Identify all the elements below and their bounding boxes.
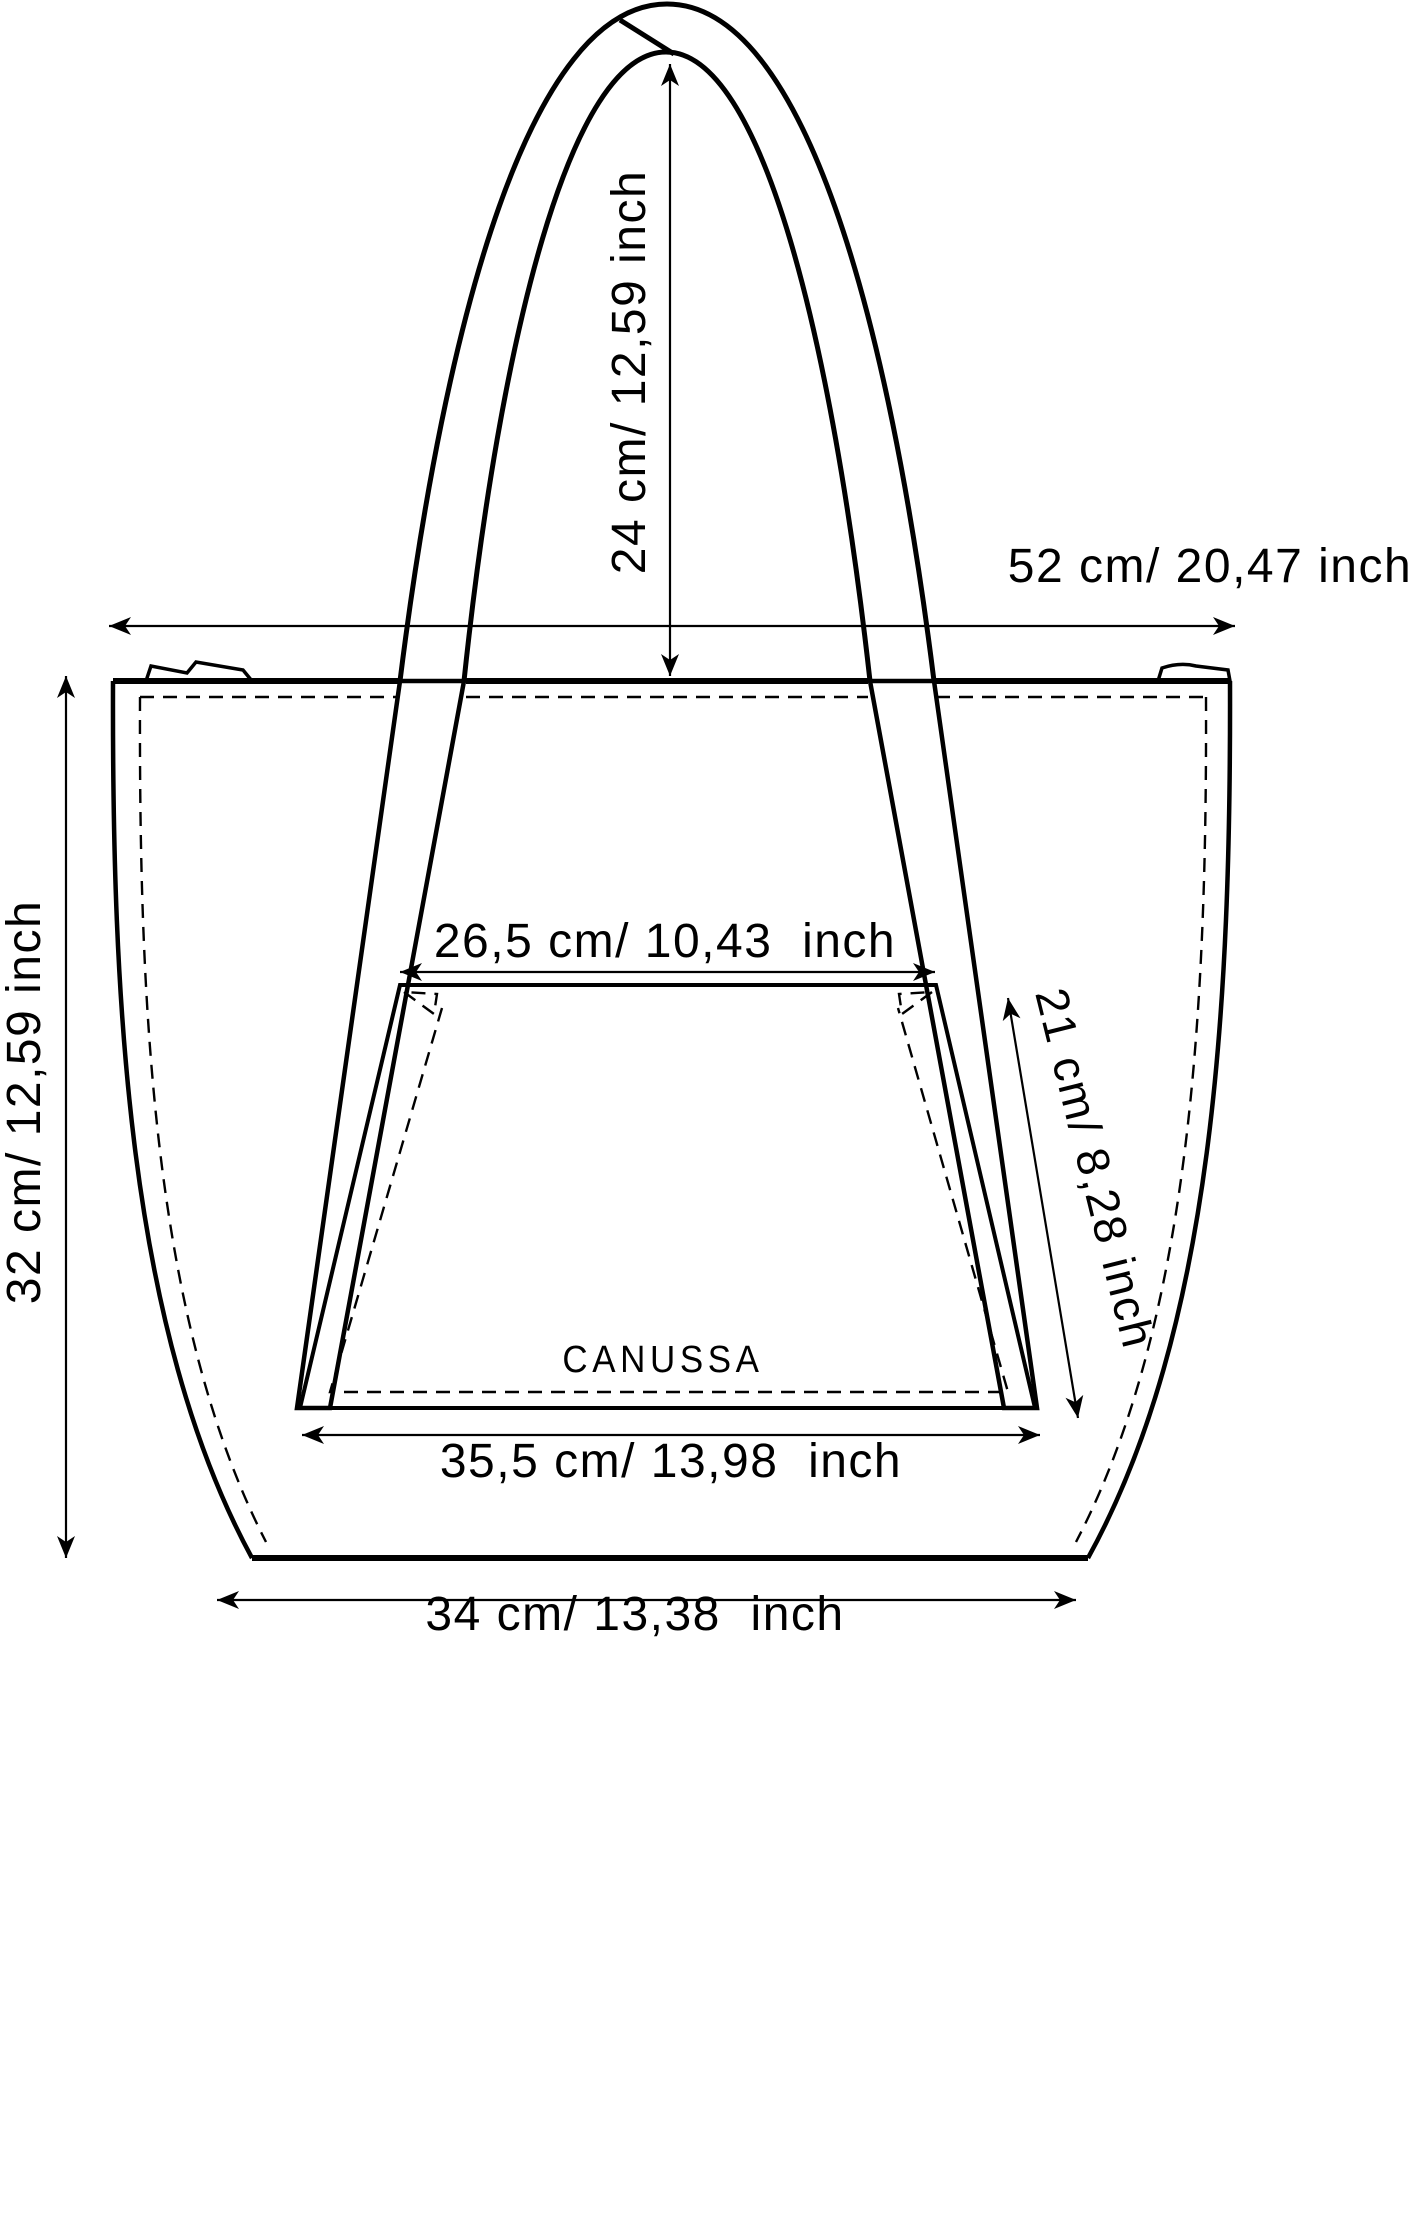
bag-measurement-diagram: CANUSSA 24 cm/ 12,59 inch 52 cm/ 20,47 i… — [0, 0, 1421, 2239]
left-stitching — [140, 697, 266, 1542]
label-pocket-bottom-width: 35,5 cm/ 13,98 inch — [440, 1435, 902, 1488]
bag-left-edge — [113, 681, 252, 1558]
label-handle-height: 24 cm/ 12,59 inch — [603, 170, 656, 574]
handle-outer-arc — [400, 4, 934, 681]
label-strap-panel-length: 21 cm/ 8,28 inch — [1025, 983, 1165, 1354]
label-side-height: 32 cm/ 12,59 inch — [0, 900, 51, 1304]
right-strap — [870, 681, 1037, 1408]
left-strap — [297, 681, 464, 1408]
dimension-labels: 24 cm/ 12,59 inch 52 cm/ 20,47 inch 32 c… — [0, 170, 1412, 1641]
label-pocket-top-width: 26,5 cm/ 10,43 inch — [434, 915, 896, 968]
brand-logo-text: CANUSSA — [562, 1338, 763, 1381]
pocket-corner-fold-right — [899, 992, 932, 1014]
label-top-width: 52 cm/ 20,47 inch — [1008, 540, 1412, 593]
straps — [297, 681, 1037, 1408]
pocket-stitching — [330, 1008, 1008, 1392]
handle — [400, 4, 934, 681]
label-base-width: 34 cm/ 13,38 inch — [425, 1588, 844, 1641]
handle-cross-edge — [620, 20, 674, 54]
tote-bag-diagram-svg: CANUSSA 24 cm/ 12,59 inch 52 cm/ 20,47 i… — [0, 0, 1421, 2239]
pocket-corner-fold-left — [404, 992, 437, 1014]
